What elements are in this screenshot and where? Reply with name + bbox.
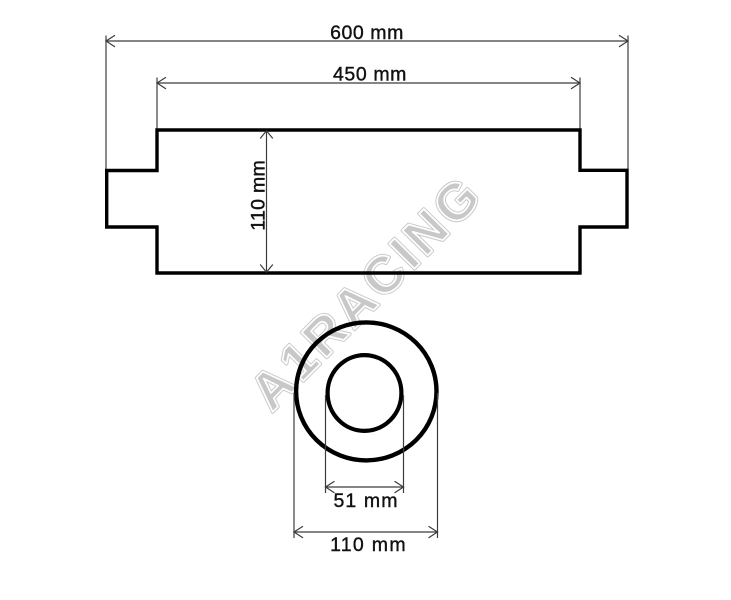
svg-text:51 mm: 51 mm — [333, 490, 398, 512]
svg-text:450 mm: 450 mm — [333, 63, 407, 85]
svg-text:110 mm: 110 mm — [247, 160, 269, 231]
svg-text:110 mm: 110 mm — [330, 534, 407, 556]
svg-text:600 mm: 600 mm — [330, 22, 404, 44]
